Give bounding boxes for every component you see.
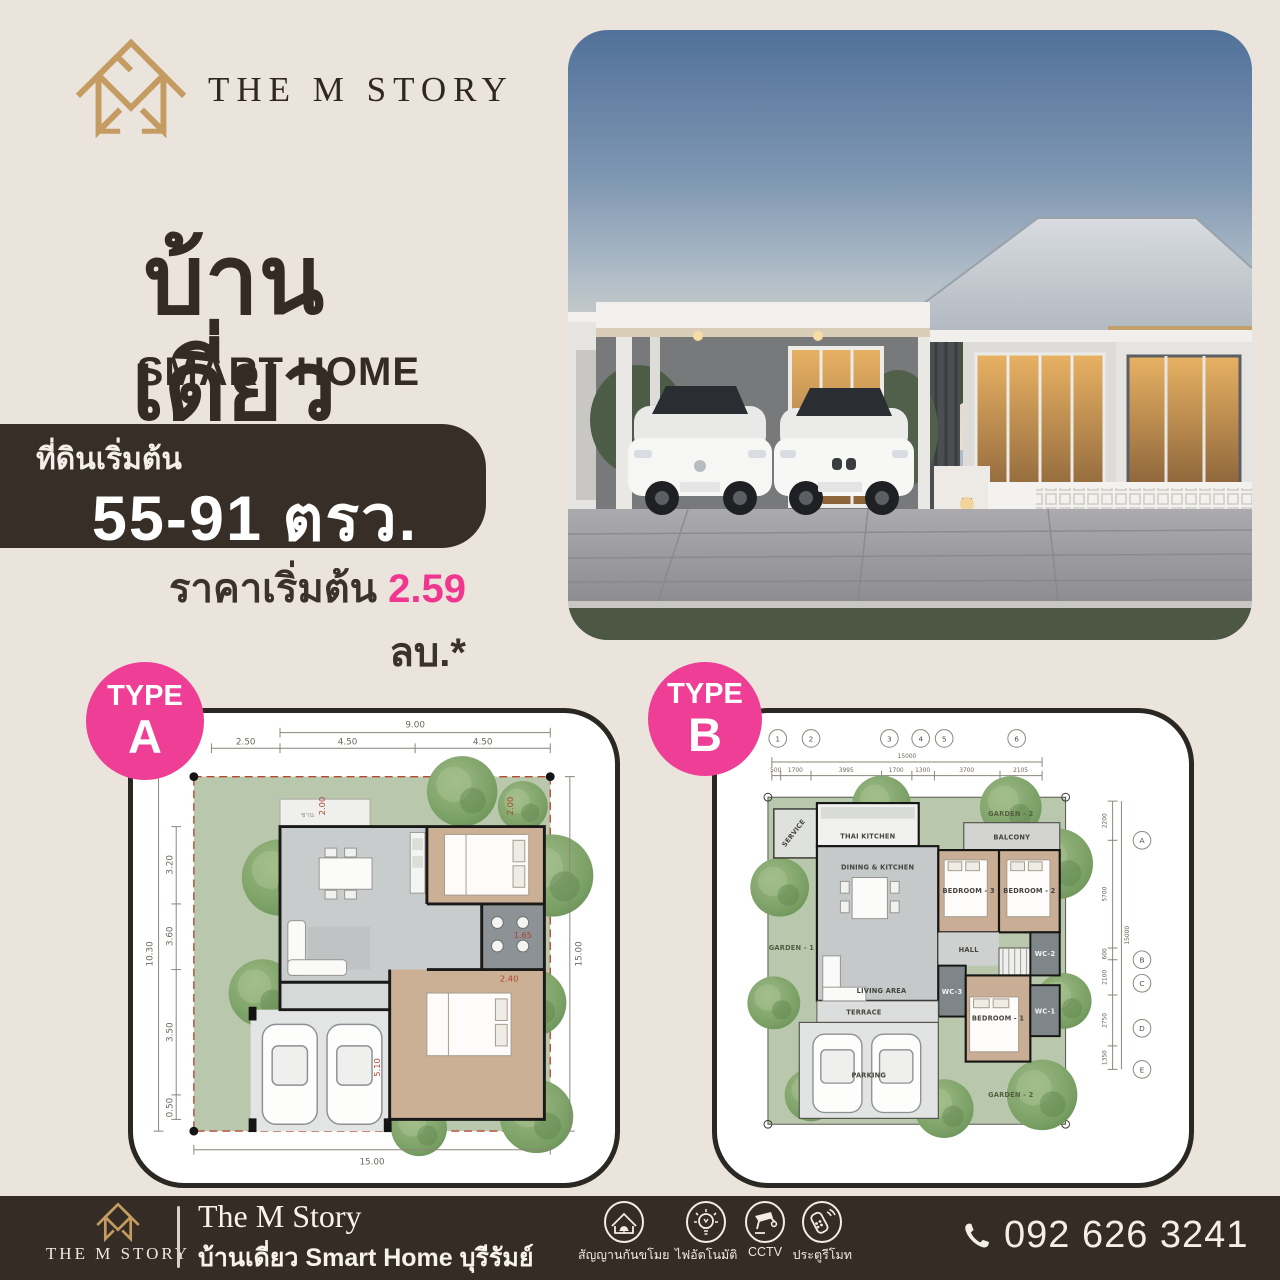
dim-b-right-seg: 600 [1103, 948, 1109, 959]
brand-title: THE M STORY [208, 70, 514, 110]
grid-col: 1 [775, 734, 780, 743]
dim-a-left-total: 10.30 [146, 941, 156, 967]
feature-label: CCTV [748, 1245, 782, 1259]
dim-a-red: 2.00 [505, 797, 515, 816]
room-label: TERRACE [846, 1009, 881, 1017]
dim-b-top-seg: 2105 [1013, 768, 1028, 774]
dim-b-right-seg: 2100 [1103, 970, 1109, 985]
type-b-badge-word: TYPE [648, 680, 762, 709]
feature-label: ไฟอัตโนมัติ [675, 1245, 737, 1265]
dim-b-right-seg: 2750 [1103, 1013, 1109, 1028]
grid-col: 4 [918, 734, 923, 743]
dim-b-right-total: 15000 [1125, 926, 1131, 945]
room-label: DINING & KITCHEN [841, 864, 914, 872]
footer-project-title: The M Story [198, 1198, 362, 1235]
grid-row: A [1139, 836, 1144, 845]
grid-row: C [1139, 979, 1144, 988]
light-bulb-icon [684, 1200, 728, 1244]
room-label: WC-1 [1035, 1008, 1056, 1016]
room-label: GARDEN - 2 [988, 810, 1033, 818]
room-label: WC-2 [1035, 950, 1056, 958]
room-label: GARDEN - 2 [988, 1091, 1033, 1099]
grid-row: B [1139, 956, 1144, 965]
house-render-image [568, 30, 1252, 640]
feature-label: สัญญานกันขโมย [578, 1245, 669, 1265]
dim-a-left-seg: 3.20 [165, 855, 175, 875]
footer-project-subtitle: บ้านเดี่ยว Smart Home บุรีรัมย์ [198, 1238, 533, 1278]
dim-a-red: 5.10 [372, 1058, 382, 1077]
room-label: THAI KITCHEN [840, 832, 895, 840]
phone-icon [962, 1221, 992, 1251]
land-size-value: 55-91 ตรว. [40, 468, 470, 568]
dim-b-right-seg: 2200 [1103, 813, 1109, 828]
grid-row: E [1140, 1065, 1145, 1074]
dim-b-top-seg: 1700 [788, 768, 803, 774]
dim-b-top-total: 15000 [898, 754, 917, 760]
price-unit: ลบ.* [389, 631, 466, 675]
type-a-badge-letter: A [86, 713, 204, 760]
grid-col: 5 [942, 734, 947, 743]
dim-a-top-seg: 4.50 [473, 737, 493, 747]
price-value: 2.59 [388, 567, 466, 611]
alarm-house-icon [602, 1200, 646, 1244]
price-line: ราคาเริ่มต้น 2.59 ลบ.* [120, 556, 466, 684]
feature-label: ประตูรีโมท [793, 1245, 852, 1265]
remote-control-icon [800, 1200, 844, 1244]
room-label: GARDEN - 1 [769, 944, 814, 952]
dim-a-top-seg: 2.50 [236, 737, 256, 747]
dim-b-top-seg: 3700 [959, 768, 974, 774]
room-label: LIVING AREA [857, 987, 907, 995]
feature-remote-gate: ประตูรีโมท [793, 1200, 852, 1265]
dim-a-top-total: 9.00 [405, 721, 425, 731]
dim-a-red: 2.00 [317, 797, 327, 816]
brand-logo-icon [72, 36, 190, 140]
dim-a-top-seg: 4.50 [338, 737, 358, 747]
phone-contact[interactable]: 092 626 3241 [962, 1214, 1248, 1257]
room-label: WC-3 [942, 988, 963, 996]
grid-row: D [1139, 1024, 1145, 1033]
porch-label: ชาน [301, 811, 314, 819]
type-b-badge-letter: B [648, 711, 762, 758]
type-b-badge: TYPE B [648, 662, 762, 776]
footer-logo-icon [88, 1202, 148, 1242]
dim-a-red: 1.65 [514, 930, 533, 940]
hero-title: บ้านเดี่ยว [48, 228, 420, 439]
room-label: HALL [959, 946, 980, 954]
dim-a-left-seg: 3.60 [165, 926, 175, 946]
phone-number: 092 626 3241 [1004, 1214, 1248, 1257]
grid-col: 2 [809, 734, 814, 743]
footer-bar: THE M STORY The M Story บ้านเดี่ยว Smart… [0, 1196, 1280, 1280]
hero-subtitle: SMART HOME [48, 350, 420, 395]
dim-b-top-seg: 500 [770, 768, 781, 774]
carport-roof [596, 302, 930, 328]
type-a-badge-word: TYPE [86, 682, 204, 711]
price-label: ราคาเริ่มต้น [169, 567, 388, 611]
room-label: BEDROOM - 3 [943, 887, 995, 895]
floorplan-card-a: ชาน [128, 708, 620, 1188]
dim-b-top-seg: 3995 [839, 768, 854, 774]
feature-auto-light: ไฟอัตโนมัติ [675, 1200, 737, 1265]
grid-col: 3 [887, 734, 892, 743]
dim-a-right-total: 15.00 [575, 941, 585, 967]
poster-page: THE M STORY บ้านเดี่ยว SMART HOME ที่ดิน… [0, 0, 1280, 1280]
cctv-icon [743, 1200, 787, 1244]
feature-list: สัญญานกันขโมย ไฟอัตโนมัติ [578, 1200, 852, 1265]
dim-b-top-seg: 1700 [889, 768, 904, 774]
footer-brand-wordmark: THE M STORY [38, 1244, 198, 1264]
footer-divider [177, 1206, 180, 1268]
room-label: BEDROOM - 1 [972, 1014, 1024, 1022]
dim-a-left-seg: 0.50 [165, 1097, 175, 1117]
dim-a-left-seg: 3.50 [165, 1022, 175, 1042]
grid-col: 6 [1014, 734, 1019, 743]
type-a-badge: TYPE A [86, 662, 204, 780]
dim-a-red: 2.40 [500, 973, 519, 983]
feature-cctv: CCTV [743, 1200, 787, 1265]
room-label: PARKING [852, 1071, 887, 1079]
dim-b-top-seg: 1300 [915, 768, 930, 774]
land-size-banner: ที่ดินเริ่มต้น 55-91 ตรว. [0, 424, 486, 548]
dim-b-right-seg: 5700 [1103, 886, 1109, 901]
room-label: BEDROOM - 2 [1003, 887, 1055, 895]
floorplan-card-b: 1 2 3 4 5 6 15000 500 1700 3995 1700 130… [712, 708, 1194, 1188]
dim-a-bottom-total: 15.00 [359, 1157, 385, 1167]
feature-alarm: สัญญานกันขโมย [578, 1200, 669, 1265]
room-label: BALCONY [993, 833, 1030, 841]
dim-b-right-seg: 1350 [1103, 1050, 1109, 1065]
